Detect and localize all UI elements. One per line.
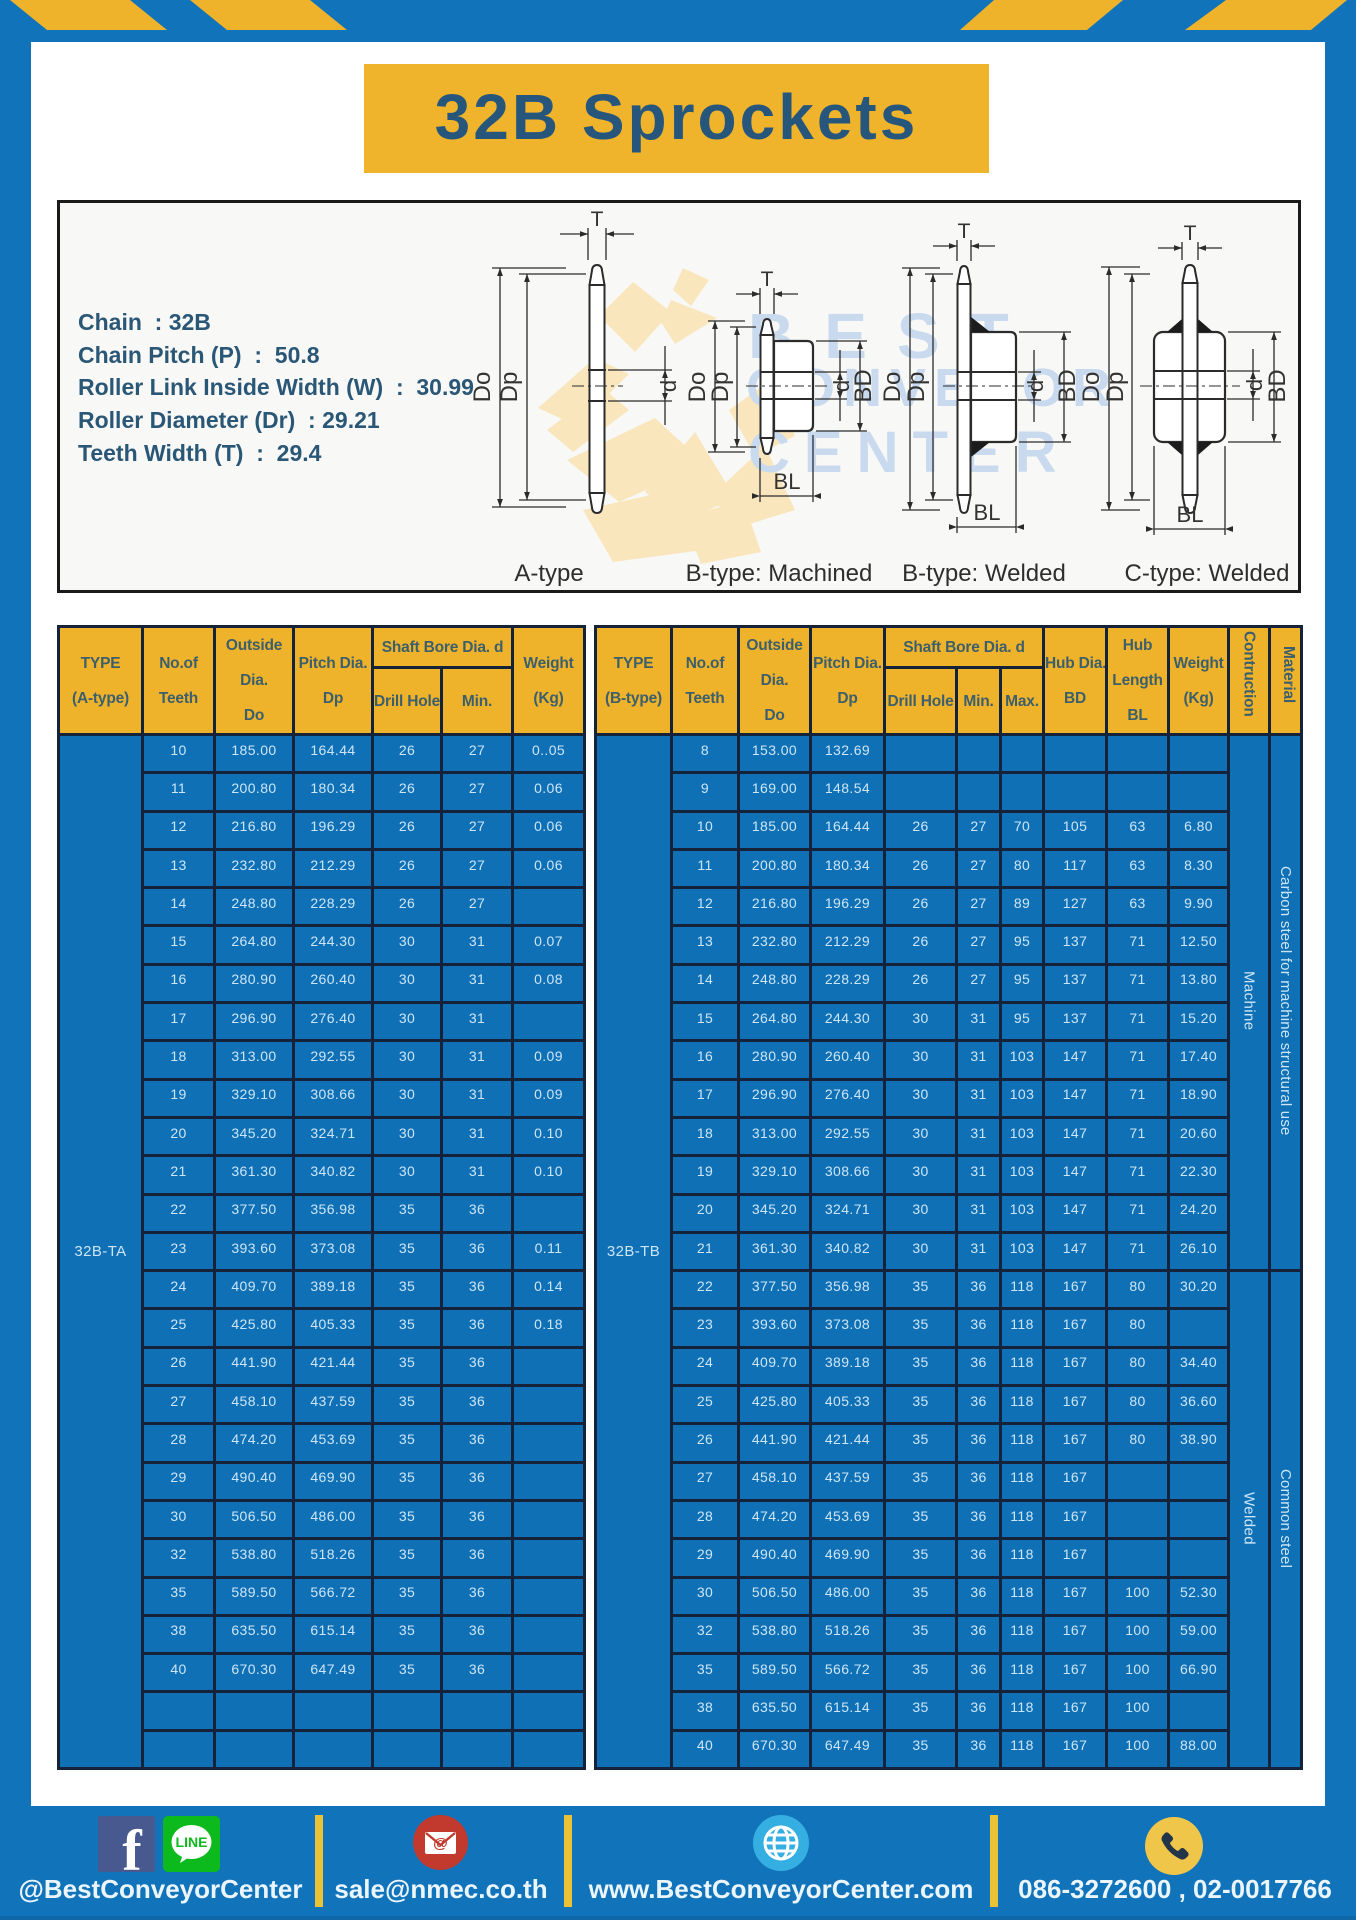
svg-text:BL: BL <box>774 469 801 494</box>
svg-text:d: d <box>1023 380 1048 392</box>
svg-text:T: T <box>761 268 774 291</box>
svg-text:T: T <box>1184 222 1197 245</box>
svg-text:B-type: Welded: B-type: Welded <box>902 560 1066 587</box>
svg-text:Dp: Dp <box>496 372 523 403</box>
svg-text:BD: BD <box>850 369 877 402</box>
svg-text:BL: BL <box>974 500 1001 525</box>
svg-text:Dp: Dp <box>1102 372 1129 403</box>
svg-text:Do: Do <box>879 372 906 403</box>
svg-text:A-type: A-type <box>514 560 583 587</box>
svg-text:f: f <box>122 1818 142 1872</box>
svg-text:BL: BL <box>1177 502 1204 527</box>
svg-text:C-type: Welded: C-type: Welded <box>1125 560 1290 587</box>
svg-text:@: @ <box>433 1835 448 1852</box>
svg-text:Dp: Dp <box>903 372 930 403</box>
svg-text:BD: BD <box>1264 369 1291 402</box>
svg-text:d: d <box>656 380 681 392</box>
svg-text:Do: Do <box>469 372 496 403</box>
svg-text:B-type: Machined: B-type: Machined <box>686 560 873 587</box>
svg-text:Do: Do <box>1078 372 1105 403</box>
svg-text:T: T <box>591 208 604 231</box>
svg-text:T: T <box>958 220 971 243</box>
svg-text:Dp: Dp <box>707 372 734 403</box>
svg-text:LINE: LINE <box>176 1834 208 1850</box>
svg-text:BD: BD <box>1054 369 1081 402</box>
